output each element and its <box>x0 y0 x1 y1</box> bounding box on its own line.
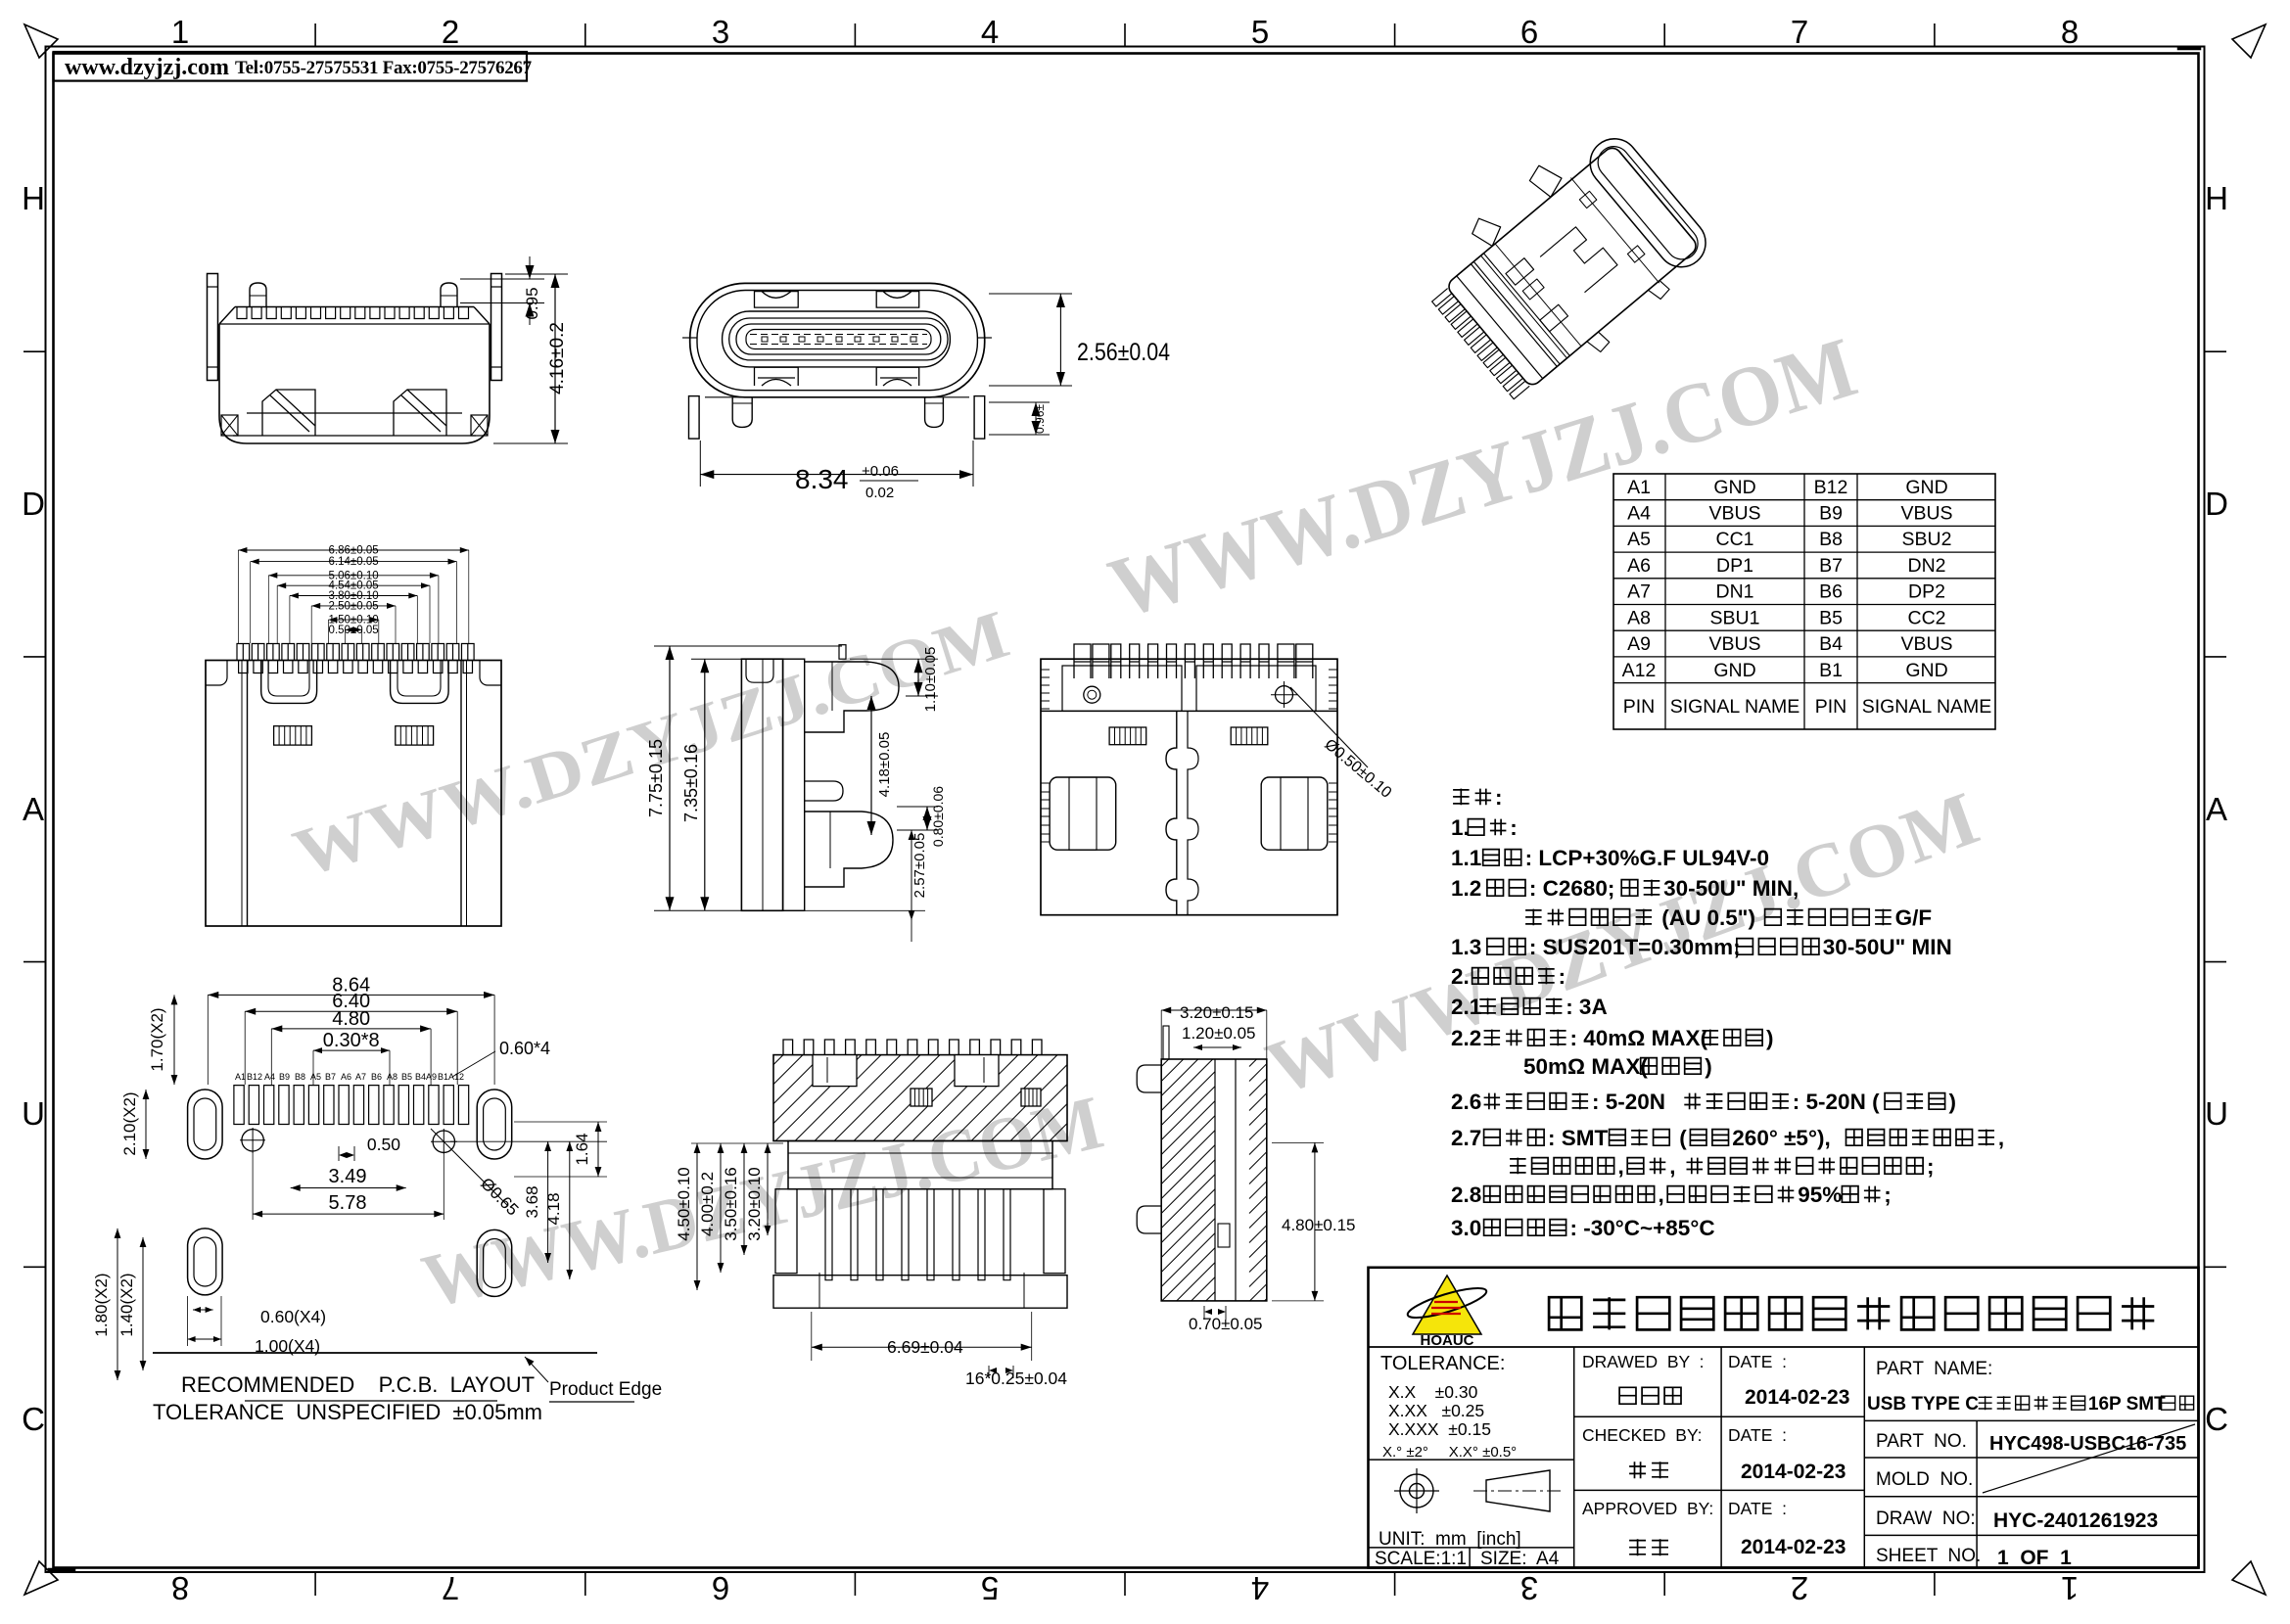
svg-text:2: 2 <box>1791 1570 1808 1606</box>
svg-text:B9: B9 <box>1819 503 1843 525</box>
svg-text:6: 6 <box>712 1570 729 1606</box>
svg-text:VBUS: VBUS <box>1708 633 1760 655</box>
svg-text:SBU2: SBU2 <box>1902 529 1952 550</box>
svg-text:DRAWED BY :: DRAWED BY : <box>1582 1352 1704 1371</box>
svg-text:7.35±0.16: 7.35±0.16 <box>681 744 701 822</box>
svg-text:2.8: 2.8 <box>1451 1183 1481 1207</box>
svg-text:+0.06: +0.06 <box>862 463 899 480</box>
svg-text:A1: A1 <box>1627 477 1651 498</box>
svg-text:A7: A7 <box>1627 581 1651 603</box>
svg-text:B12: B12 <box>1814 477 1848 498</box>
svg-text:2.10(X2): 2.10(X2) <box>120 1091 139 1155</box>
svg-text:B5: B5 <box>401 1072 412 1082</box>
svg-text:D: D <box>22 486 45 522</box>
svg-text:GND: GND <box>1905 477 1947 498</box>
svg-text::: : <box>1559 964 1566 989</box>
svg-text:0.80±0.06: 0.80±0.06 <box>930 786 946 847</box>
svg-text:VBUS: VBUS <box>1900 503 1952 525</box>
svg-text:16P SMT: 16P SMT <box>2088 1394 2166 1415</box>
svg-text:3.68: 3.68 <box>523 1185 541 1218</box>
svg-text:SCALE:1:1: SCALE:1:1 <box>1375 1549 1467 1569</box>
svg-text:X.° ±2° X.X° ±0.5°: X.° ±2° X.X° ±0.5° <box>1382 1444 1517 1461</box>
svg-text:PART NO.: PART NO. <box>1876 1431 1967 1452</box>
svg-text:,: , <box>1669 1154 1682 1179</box>
svg-text:1.40(X2): 1.40(X2) <box>117 1273 136 1336</box>
svg-text:1.80(X2): 1.80(X2) <box>92 1273 111 1336</box>
svg-text:GND: GND <box>1713 660 1755 681</box>
svg-text:1.10±0.05: 1.10±0.05 <box>922 647 939 713</box>
svg-text:0.60*4: 0.60*4 <box>499 1039 550 1058</box>
svg-text:2.50±0.05: 2.50±0.05 <box>329 600 379 612</box>
svg-text:PART NAME:: PART NAME: <box>1876 1359 1992 1379</box>
svg-text:2.56±0.04: 2.56±0.04 <box>1077 339 1170 366</box>
svg-text:CHECKED BY:: CHECKED BY: <box>1582 1425 1703 1445</box>
svg-text:GND: GND <box>1713 477 1755 498</box>
svg-text:B4A9: B4A9 <box>415 1072 437 1082</box>
svg-text:X.XX ±0.25: X.XX ±0.25 <box>1388 1401 1484 1420</box>
svg-text:DP2: DP2 <box>1908 581 1945 603</box>
svg-text:2.6: 2.6 <box>1451 1090 1481 1114</box>
svg-text:3.20±0.10: 3.20±0.10 <box>745 1167 764 1241</box>
svg-text:U: U <box>2205 1095 2228 1132</box>
svg-text:: 5-20N (: : 5-20N ( <box>1793 1090 1880 1114</box>
svg-text:1.64: 1.64 <box>573 1133 591 1165</box>
svg-text:1.20±0.05: 1.20±0.05 <box>1182 1024 1256 1043</box>
svg-text:0.30*8: 0.30*8 <box>323 1030 380 1051</box>
svg-text:H: H <box>22 180 45 216</box>
svg-text:;: ; <box>1884 1183 1892 1207</box>
svg-text:CC2: CC2 <box>1907 607 1945 628</box>
svg-text:,: , <box>1998 1126 2004 1150</box>
svg-text:H: H <box>2205 180 2228 216</box>
svg-text:DATE :: DATE : <box>1728 1352 1787 1371</box>
svg-text:260° ±5°),: 260° ±5°), <box>1732 1126 1837 1150</box>
svg-text:A8: A8 <box>1627 607 1651 628</box>
svg-text:50mΩ MAX(: 50mΩ MAX( <box>1523 1054 1648 1079</box>
svg-text:3.0: 3.0 <box>1451 1216 1481 1240</box>
svg-text:8: 8 <box>2061 14 2079 50</box>
svg-text::: : <box>1495 785 1503 810</box>
svg-text:VBUS: VBUS <box>1708 503 1760 525</box>
svg-text:1.: 1. <box>1451 815 1470 840</box>
svg-text:3: 3 <box>1520 1570 1538 1606</box>
svg-text:A: A <box>23 791 44 827</box>
svg-text:4: 4 <box>981 14 999 50</box>
svg-text:SBU1: SBU1 <box>1710 607 1760 628</box>
svg-text:DN1: DN1 <box>1715 581 1753 603</box>
svg-text:GND: GND <box>1905 660 1947 681</box>
svg-text:6: 6 <box>1520 14 1538 50</box>
svg-text:A1: A1 <box>235 1072 246 1082</box>
svg-text:DRAW NO:: DRAW NO: <box>1876 1508 1976 1529</box>
svg-text:C: C <box>2205 1401 2228 1437</box>
svg-text:1.3: 1.3 <box>1451 935 1488 959</box>
svg-text:0.95: 0.95 <box>523 287 541 319</box>
svg-text:30-50U" MIN: 30-50U" MIN <box>1823 935 1952 959</box>
svg-text:SIGNAL NAME: SIGNAL NAME <box>1862 696 1992 718</box>
svg-text:0.02: 0.02 <box>865 485 894 501</box>
svg-text:): ) <box>1949 1090 1957 1114</box>
svg-text:Tel:0755-27575531 Fax:0755-275: Tel:0755-27575531 Fax:0755-27576267 <box>235 58 533 78</box>
svg-text:UNIT: mm [inch]: UNIT: mm [inch] <box>1379 1529 1521 1550</box>
svg-text:30-50U" MIN,: 30-50U" MIN, <box>1663 876 1799 901</box>
svg-text:SIZE: A4: SIZE: A4 <box>1480 1549 1560 1569</box>
svg-text:0.96±: 0.96± <box>1033 404 1047 434</box>
svg-text:8.34: 8.34 <box>795 464 849 494</box>
svg-text:A6: A6 <box>341 1072 351 1082</box>
svg-text:4.80: 4.80 <box>332 1008 370 1030</box>
svg-text:4.80±0.15: 4.80±0.15 <box>1282 1216 1356 1234</box>
svg-text::: : <box>1510 815 1518 840</box>
svg-text:: -30°C~+85°C: : -30°C~+85°C <box>1570 1216 1715 1240</box>
svg-text:www.dzyjzj.com: www.dzyjzj.com <box>65 55 229 80</box>
svg-text:A5: A5 <box>310 1072 321 1082</box>
svg-text:1.2: 1.2 <box>1451 876 1488 901</box>
svg-text:HYC-2401261923: HYC-2401261923 <box>1993 1509 2158 1532</box>
svg-text:A: A <box>2206 791 2227 827</box>
svg-text:TOLERANCE:: TOLERANCE: <box>1380 1353 1505 1374</box>
svg-text:U: U <box>22 1095 45 1132</box>
svg-text:: 3A: : 3A <box>1566 995 1608 1019</box>
svg-text:: LCP+30%G.F UL94V-0: : LCP+30%G.F UL94V-0 <box>1525 846 1769 870</box>
svg-text:5: 5 <box>1251 14 1269 50</box>
svg-text:B9: B9 <box>279 1072 290 1082</box>
svg-text:TOLERANCE UNSPECIFIED ±0.05m: TOLERANCE UNSPECIFIED ±0.05mm <box>153 1400 542 1424</box>
svg-text:1: 1 <box>2061 1570 2079 1606</box>
svg-text:SIGNAL NAME: SIGNAL NAME <box>1670 696 1800 718</box>
svg-text:: 5-20N: : 5-20N <box>1592 1090 1678 1114</box>
svg-text:PIN: PIN <box>1815 696 1847 718</box>
svg-text:: SMT: : SMT <box>1548 1126 1608 1150</box>
svg-text:APPROVED BY:: APPROVED BY: <box>1582 1499 1713 1518</box>
svg-text:A4: A4 <box>1627 503 1651 525</box>
svg-text:MOLD NO.: MOLD NO. <box>1876 1469 1973 1490</box>
svg-text:A6: A6 <box>1627 555 1651 577</box>
svg-text:D: D <box>2205 486 2228 522</box>
svg-text:B8: B8 <box>295 1072 305 1082</box>
svg-text:B4: B4 <box>1819 633 1843 655</box>
svg-text:B6: B6 <box>371 1072 382 1082</box>
svg-text:A4: A4 <box>264 1072 275 1082</box>
svg-text:,: , <box>1618 1154 1624 1179</box>
svg-text:0.60(X4): 0.60(X4) <box>260 1307 326 1326</box>
svg-text:3.50±0.16: 3.50±0.16 <box>722 1167 740 1241</box>
svg-text:Product Edge: Product Edge <box>549 1379 662 1400</box>
svg-text:2.7: 2.7 <box>1451 1126 1481 1150</box>
svg-text:1: 1 <box>171 14 189 50</box>
svg-text:DATE :: DATE : <box>1728 1425 1787 1445</box>
svg-text:: C2680;: : C2680; <box>1529 876 1621 901</box>
svg-text:2014-02-23: 2014-02-23 <box>1741 1461 1846 1483</box>
svg-text:7: 7 <box>1791 14 1808 50</box>
svg-text:2.1: 2.1 <box>1451 995 1481 1019</box>
svg-text:B5: B5 <box>1819 607 1843 628</box>
svg-text:B12: B12 <box>247 1072 262 1082</box>
svg-text:1.70(X2): 1.70(X2) <box>148 1007 166 1071</box>
svg-text:4.18: 4.18 <box>544 1192 563 1225</box>
svg-text:X.XXX ±0.15: X.XXX ±0.15 <box>1388 1419 1491 1439</box>
svg-text:B8: B8 <box>1819 529 1843 550</box>
svg-text:0.50±0.05: 0.50±0.05 <box>329 625 379 636</box>
svg-text:2014-02-23: 2014-02-23 <box>1741 1536 1846 1558</box>
svg-text:): ) <box>1705 1054 1712 1079</box>
svg-text:4: 4 <box>1251 1570 1269 1606</box>
svg-text:C: C <box>22 1401 45 1437</box>
svg-text:A5: A5 <box>1627 529 1651 550</box>
svg-text:0.50: 0.50 <box>367 1135 400 1154</box>
svg-text:2.: 2. <box>1451 964 1470 989</box>
svg-text:7: 7 <box>442 1570 459 1606</box>
svg-text:RECOMMENDED P.C.B. LAYOUT: RECOMMENDED P.C.B. LAYOUT <box>181 1372 535 1397</box>
svg-text:): ) <box>1766 1026 1774 1050</box>
svg-text:B6: B6 <box>1819 581 1843 603</box>
svg-text:4.16±0.2: 4.16±0.2 <box>547 322 568 394</box>
svg-text:5: 5 <box>981 1570 999 1606</box>
svg-text:B7: B7 <box>1819 555 1843 577</box>
svg-text:3.20±0.15: 3.20±0.15 <box>1180 1003 1254 1022</box>
svg-text:5.78: 5.78 <box>329 1192 367 1214</box>
svg-text:7.75±0.15: 7.75±0.15 <box>646 739 666 817</box>
svg-text:: SUS201T=0.30mm;: : SUS201T=0.30mm; <box>1529 935 1747 959</box>
svg-text:A8: A8 <box>387 1072 397 1082</box>
svg-text:2.2: 2.2 <box>1451 1026 1481 1050</box>
svg-text:B1A12: B1A12 <box>438 1072 464 1082</box>
svg-text:2: 2 <box>442 14 459 50</box>
svg-text:95%: 95% <box>1798 1183 1842 1207</box>
svg-text:16*0.25±0.04: 16*0.25±0.04 <box>965 1369 1067 1388</box>
svg-text:B7: B7 <box>325 1072 336 1082</box>
svg-text:X.X ±0.30: X.X ±0.30 <box>1388 1382 1478 1402</box>
svg-text:DP1: DP1 <box>1716 555 1753 577</box>
svg-text:HOAUC: HOAUC <box>1421 1332 1474 1349</box>
svg-text:(AU 0.5"): (AU 0.5") <box>1656 905 1761 930</box>
svg-text:PIN: PIN <box>1623 696 1656 718</box>
svg-text:6.14±0.05: 6.14±0.05 <box>329 556 379 568</box>
svg-text:A7: A7 <box>355 1072 366 1082</box>
svg-text:3.49: 3.49 <box>329 1166 367 1187</box>
svg-text:4.50±0.10: 4.50±0.10 <box>675 1167 693 1241</box>
svg-text:USB TYPE C: USB TYPE C <box>1867 1394 1984 1415</box>
svg-text:4.00±0.2: 4.00±0.2 <box>698 1172 717 1236</box>
svg-text:DN2: DN2 <box>1907 555 1945 577</box>
svg-text:DATE :: DATE : <box>1728 1499 1787 1518</box>
svg-text:SHEET NO.: SHEET NO. <box>1876 1546 1981 1566</box>
svg-text:3: 3 <box>712 14 729 50</box>
svg-text:8: 8 <box>171 1570 189 1606</box>
svg-text:,: , <box>1659 1183 1664 1207</box>
svg-text:: 40mΩ MAX(: : 40mΩ MAX( <box>1570 1026 1708 1050</box>
svg-text:2.57±0.05: 2.57±0.05 <box>911 833 928 899</box>
svg-text:6.69±0.04: 6.69±0.04 <box>887 1337 963 1357</box>
svg-text:CC1: CC1 <box>1715 529 1753 550</box>
svg-text:B1: B1 <box>1819 660 1843 681</box>
svg-text:6.86±0.05: 6.86±0.05 <box>329 545 379 557</box>
svg-text:G/F: G/F <box>1895 905 1933 930</box>
svg-text:A12: A12 <box>1622 660 1657 681</box>
svg-text:1 OF 1: 1 OF 1 <box>1997 1547 2072 1569</box>
svg-text:4.18±0.05: 4.18±0.05 <box>876 732 893 798</box>
svg-text:(: ( <box>1673 1126 1687 1150</box>
svg-text:;: ; <box>1927 1154 1935 1179</box>
svg-text:A9: A9 <box>1627 633 1651 655</box>
svg-text:VBUS: VBUS <box>1900 633 1952 655</box>
svg-text:2014-02-23: 2014-02-23 <box>1745 1386 1849 1409</box>
